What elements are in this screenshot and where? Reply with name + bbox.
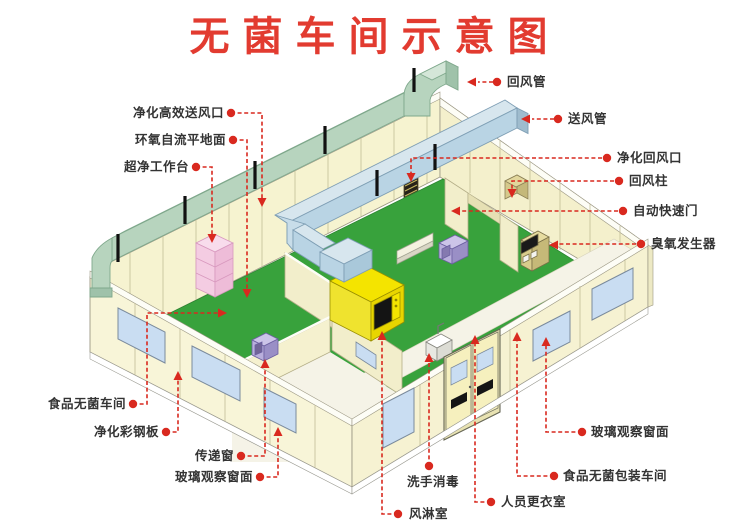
clean-workbench bbox=[196, 234, 233, 297]
label-purify-steel-panel: 净化彩钢板 bbox=[94, 424, 159, 440]
label-food-sterile-workshop: 食品无菌车间 bbox=[48, 396, 126, 412]
label-supply-air-duct: 送风管 bbox=[568, 111, 607, 127]
label-air-shower-room: 风淋室 bbox=[409, 506, 448, 522]
label-glass-observation-window-right: 玻璃观察窗面 bbox=[591, 424, 669, 440]
label-food-packaging-workshop: 食品无菌包装车间 bbox=[563, 468, 667, 484]
cleanroom-diagram bbox=[0, 0, 750, 530]
label-return-air-column: 回风柱 bbox=[629, 173, 668, 189]
label-staff-changing-room: 人员更衣室 bbox=[501, 494, 566, 510]
label-hepa-supply-outlet: 净化高效送风口 bbox=[133, 105, 224, 121]
label-glass-observation-window-left: 玻璃观察窗面 bbox=[175, 469, 253, 485]
label-purify-return-outlet: 净化回风口 bbox=[617, 150, 682, 166]
cleanroom-schematic: 无菌车间示意图 净化高效送风口 环氧自流平地面 超净工作台 回风管 送风管 净化… bbox=[0, 0, 750, 530]
label-ozone-generator: 臭氧发生器 bbox=[651, 236, 716, 252]
diagram-title: 无菌车间示意图 bbox=[190, 4, 561, 62]
label-transfer-window: 传递窗 bbox=[195, 448, 234, 464]
label-hand-wash-disinfect: 洗手消毒 bbox=[407, 474, 459, 490]
label-auto-quick-door: 自动快速门 bbox=[633, 203, 698, 219]
label-return-air-duct: 回风管 bbox=[507, 74, 546, 90]
label-clean-workbench: 超净工作台 bbox=[124, 159, 189, 175]
label-epoxy-floor: 环氧自流平地面 bbox=[135, 132, 226, 148]
